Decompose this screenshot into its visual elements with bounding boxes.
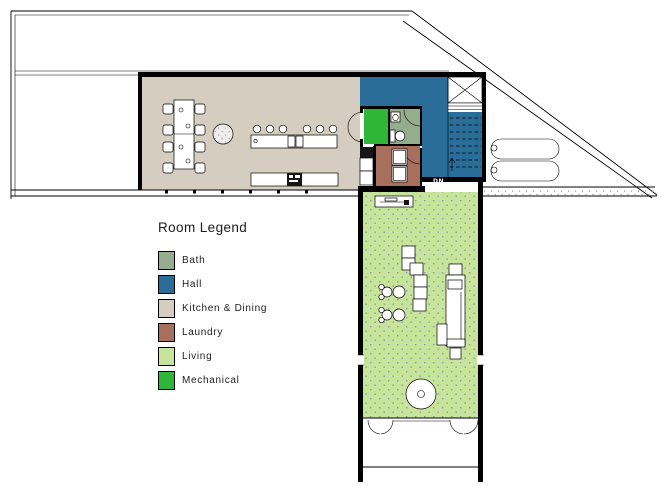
legend-label: Laundry	[182, 327, 223, 338]
pendant-table-circle	[213, 124, 233, 144]
stair-down-label: DN	[433, 178, 444, 185]
propane-tanks	[491, 139, 559, 181]
legend-swatch-kitchen-dining	[158, 299, 175, 318]
legend-item-mechanical: Mechanical	[158, 368, 267, 392]
legend-title: Room Legend	[158, 220, 267, 235]
legend-swatch-mechanical	[158, 371, 175, 390]
legend-label: Hall	[182, 279, 202, 290]
room-legend: Room Legend Bath Hall Kitchen & Dining L…	[158, 220, 267, 392]
media-console	[375, 196, 413, 207]
legend-swatch-bath	[158, 251, 175, 270]
legend-swatch-living	[158, 347, 175, 366]
dining-table	[174, 100, 194, 169]
room-mechanical	[364, 109, 388, 144]
legend-swatch-hall	[158, 275, 175, 294]
legend-swatch-laundry	[158, 323, 175, 342]
legend-label: Bath	[182, 255, 205, 266]
kitchen-counter	[251, 173, 338, 186]
legend-item-bath: Bath	[158, 248, 267, 272]
stool	[253, 125, 261, 133]
bath-sink	[391, 112, 400, 122]
legend-label: Kitchen & Dining	[182, 303, 267, 314]
legend-item-kitchen-dining: Kitchen & Dining	[158, 296, 267, 320]
floor-plan-canvas[interactable]: DN	[0, 0, 661, 486]
kitchen-window-ticks	[165, 190, 308, 194]
legend-item-hall: Hall	[158, 272, 267, 296]
living-entry-doors	[363, 418, 478, 434]
legend-item-living: Living	[158, 344, 267, 368]
toilet	[390, 130, 405, 142]
floor-plan-drawing: DN	[0, 0, 661, 486]
refrigerator-cabinet	[360, 147, 373, 185]
kitchen-sink-appliance	[287, 173, 302, 186]
concrete-strip	[483, 188, 655, 196]
legend-label: Mechanical	[182, 375, 240, 386]
round-table	[406, 379, 436, 409]
legend-item-laundry: Laundry	[158, 320, 267, 344]
legend-label: Living	[182, 351, 212, 362]
